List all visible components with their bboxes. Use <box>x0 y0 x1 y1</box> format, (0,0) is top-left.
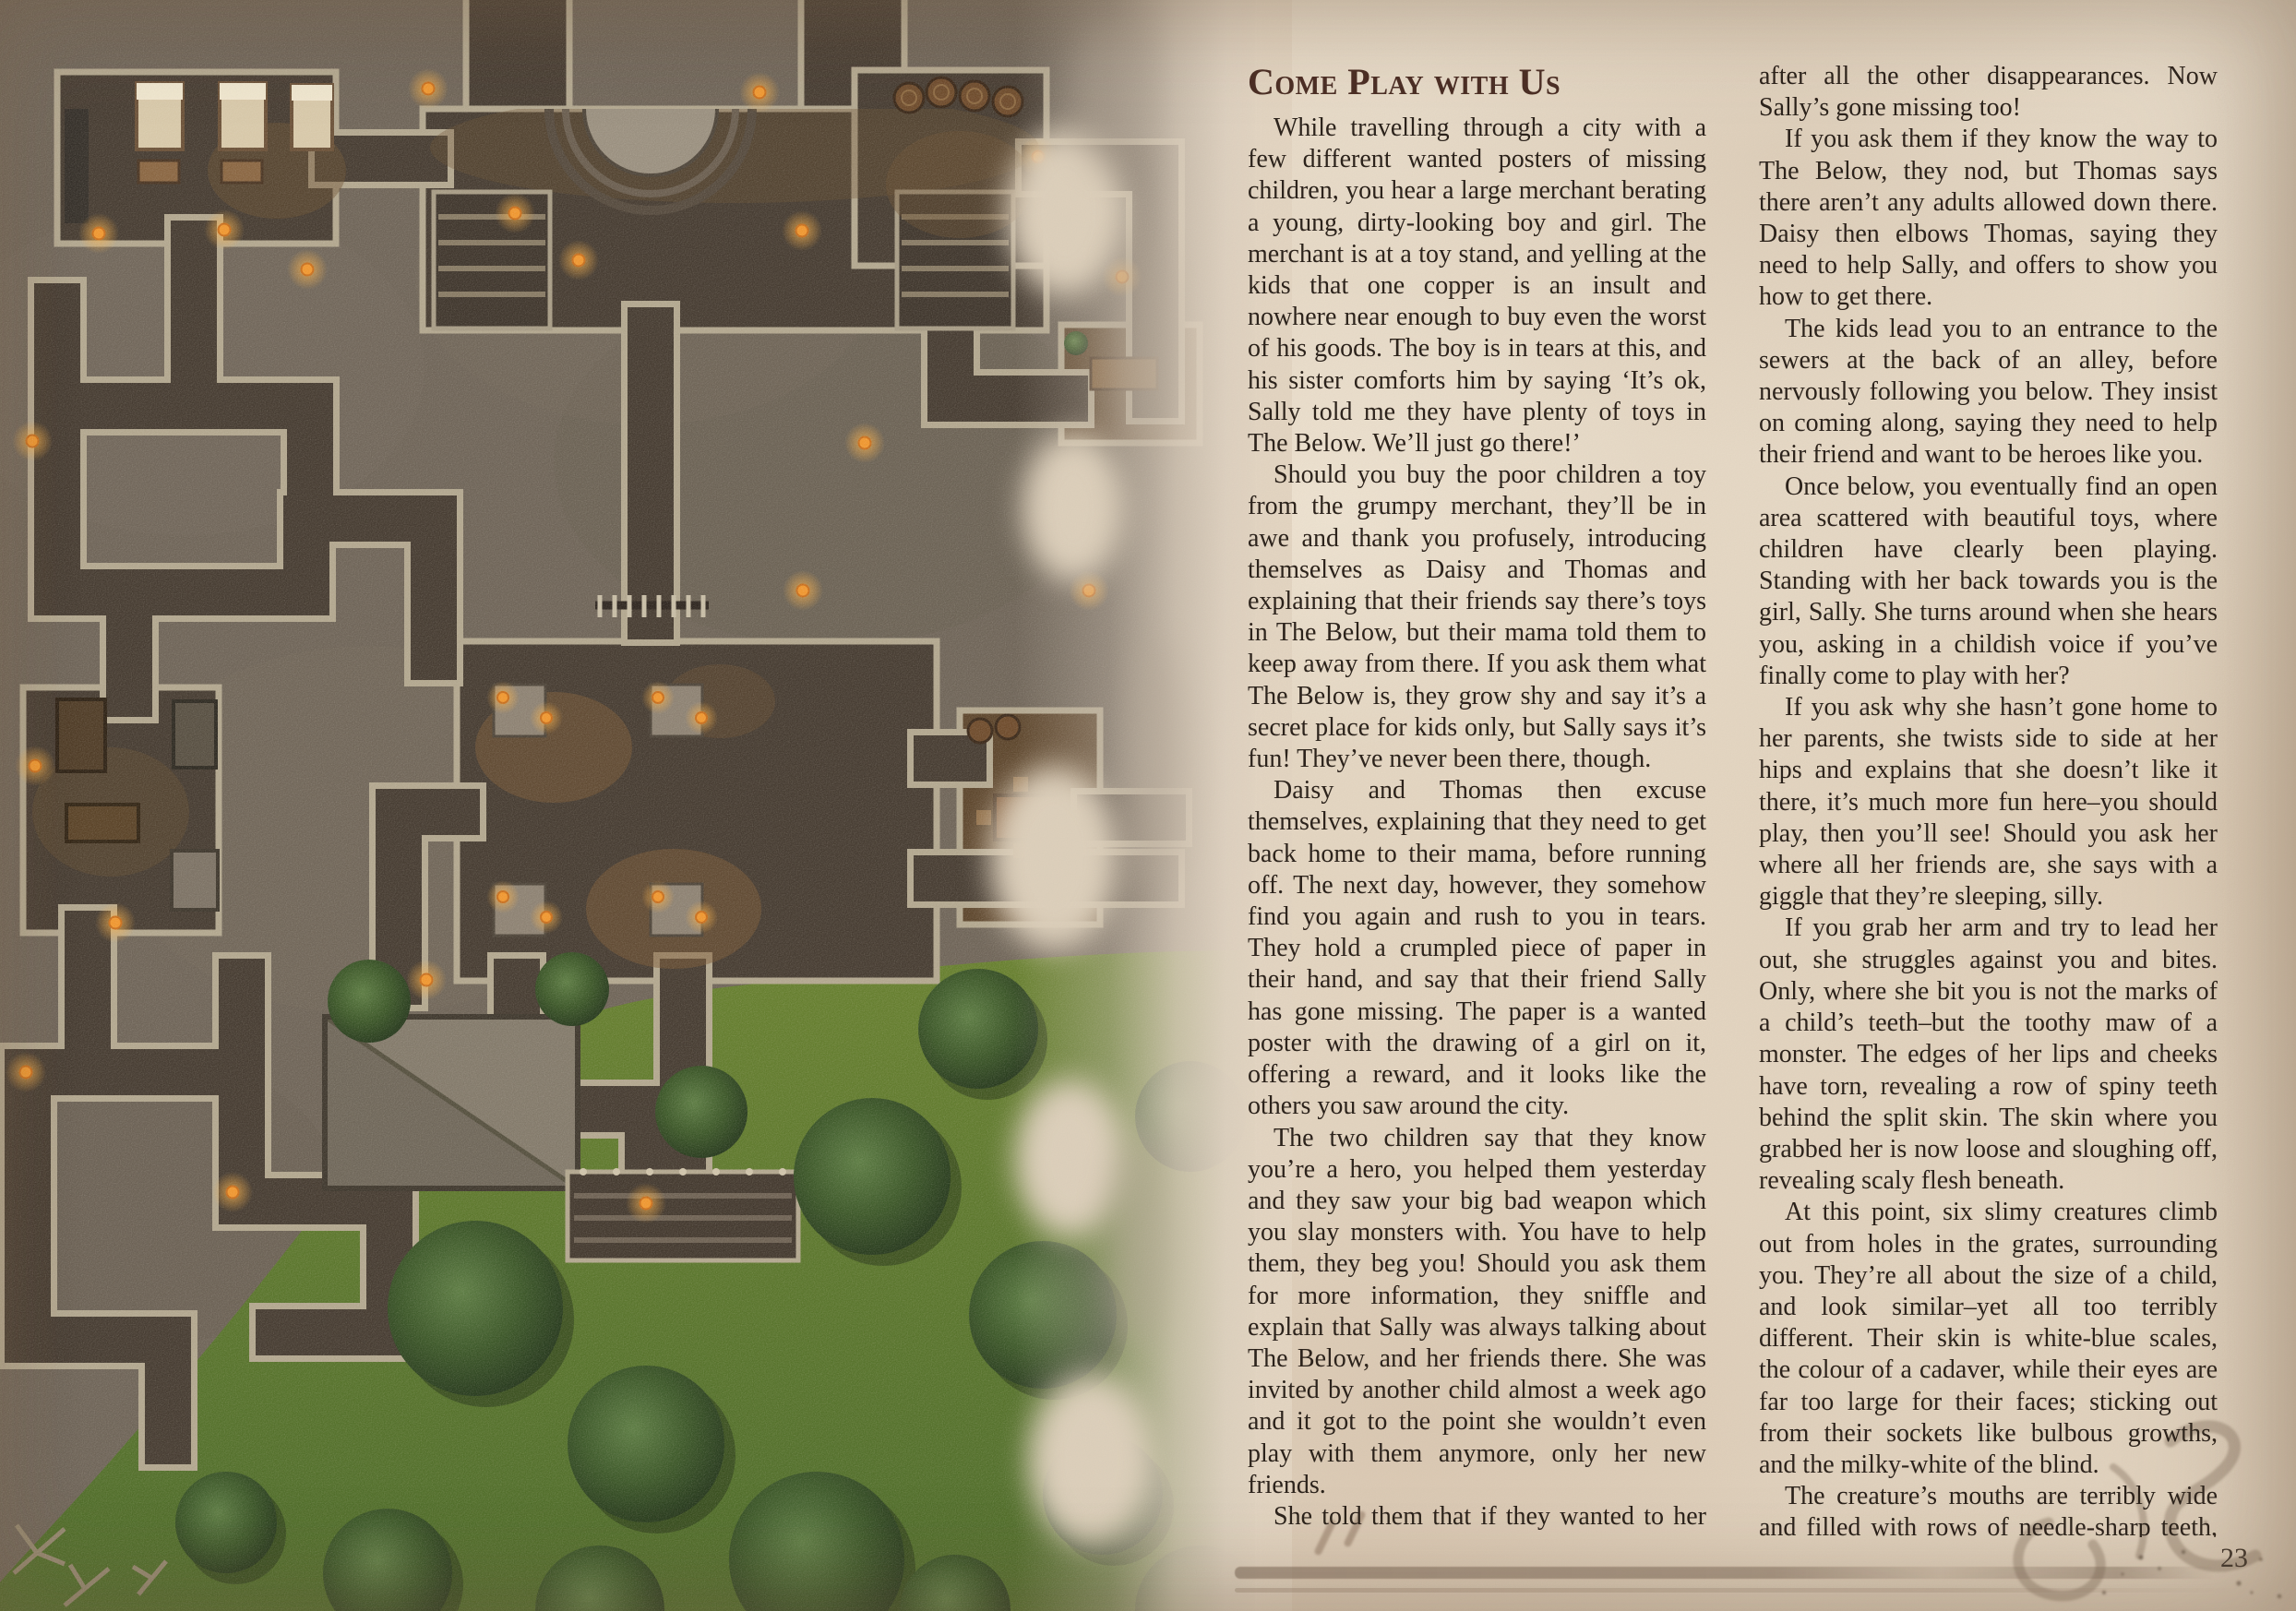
paragraph: While travelling through a city with a f… <box>1248 113 1706 459</box>
footer-rule-thin <box>1235 1588 2250 1593</box>
paragraph: She told them that if they wanted to her… <box>1248 1501 1706 1537</box>
right-text-column: after all the other disappearances. Now … <box>1759 61 2218 1537</box>
paragraph: The two children say that they know you’… <box>1248 1123 1706 1501</box>
footer-rule <box>1235 1567 2215 1579</box>
paragraph: If you ask them if they know the way to … <box>1759 124 2218 313</box>
paragraph: Once below, you eventually find an open … <box>1759 471 2218 692</box>
paragraph: The creature’s mouths are terribly wide … <box>1759 1481 2218 1537</box>
page-number: 23 <box>2220 1543 2248 1574</box>
paragraph: Should you buy the poor children a toy f… <box>1248 459 1706 775</box>
dungeon-map <box>0 0 1255 1611</box>
book-page-spread: Come Play with Us While travelling throu… <box>0 0 2296 1611</box>
paragraph: At this point, six slimy creatures climb… <box>1759 1197 2218 1481</box>
paragraph: If you ask why she hasn’t gone home to h… <box>1759 692 2218 913</box>
paragraph: If you grab her arm and try to lead her … <box>1759 913 2218 1197</box>
map-grain-texture <box>0 0 1255 1611</box>
paragraph: after all the other disappearances. Now … <box>1759 61 2218 124</box>
paragraph: Daisy and Thomas then excuse themselves,… <box>1248 775 1706 1122</box>
left-text-column: Come Play with Us While travelling throu… <box>1248 61 1706 1537</box>
section-title: Come Play with Us <box>1248 61 1706 103</box>
paragraph: The kids lead you to an entrance to the … <box>1759 314 2218 471</box>
